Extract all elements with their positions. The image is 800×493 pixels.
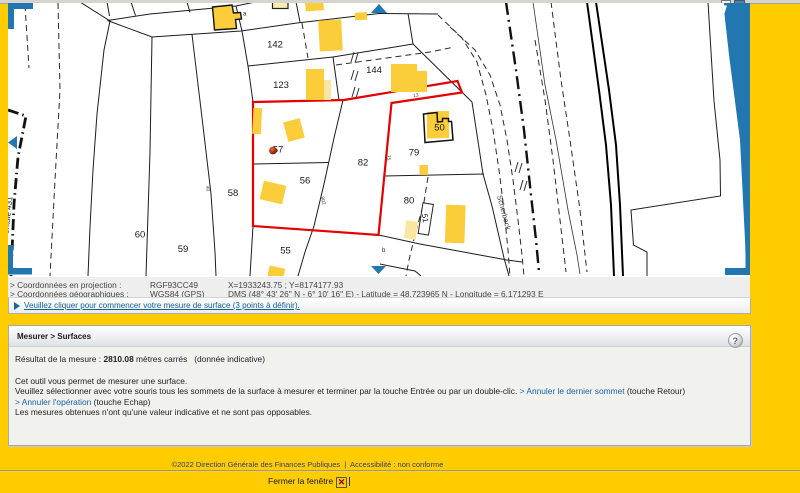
svg-text:75: 75 — [385, 155, 391, 161]
svg-text:40: 40 — [204, 185, 211, 192]
svg-text:13: 13 — [413, 92, 420, 99]
svg-text:82: 82 — [358, 158, 369, 169]
svg-text:60: 60 — [135, 230, 146, 241]
svg-text:55: 55 — [280, 246, 291, 257]
svg-text:a: a — [243, 12, 247, 18]
svg-text:80: 80 — [404, 196, 415, 207]
svg-text:144: 144 — [366, 65, 382, 76]
svg-text:123: 123 — [273, 80, 289, 91]
svg-text:Scherbeck: Scherbeck — [495, 194, 513, 231]
svg-text:b: b — [382, 248, 386, 254]
svg-text:59: 59 — [178, 244, 189, 255]
svg-text:142: 142 — [267, 40, 283, 51]
svg-text:802: 802 — [319, 196, 327, 206]
svg-text:79: 79 — [409, 148, 420, 159]
svg-text:58: 58 — [228, 188, 239, 199]
svg-text:56: 56 — [300, 176, 311, 187]
svg-text:50: 50 — [434, 123, 445, 134]
